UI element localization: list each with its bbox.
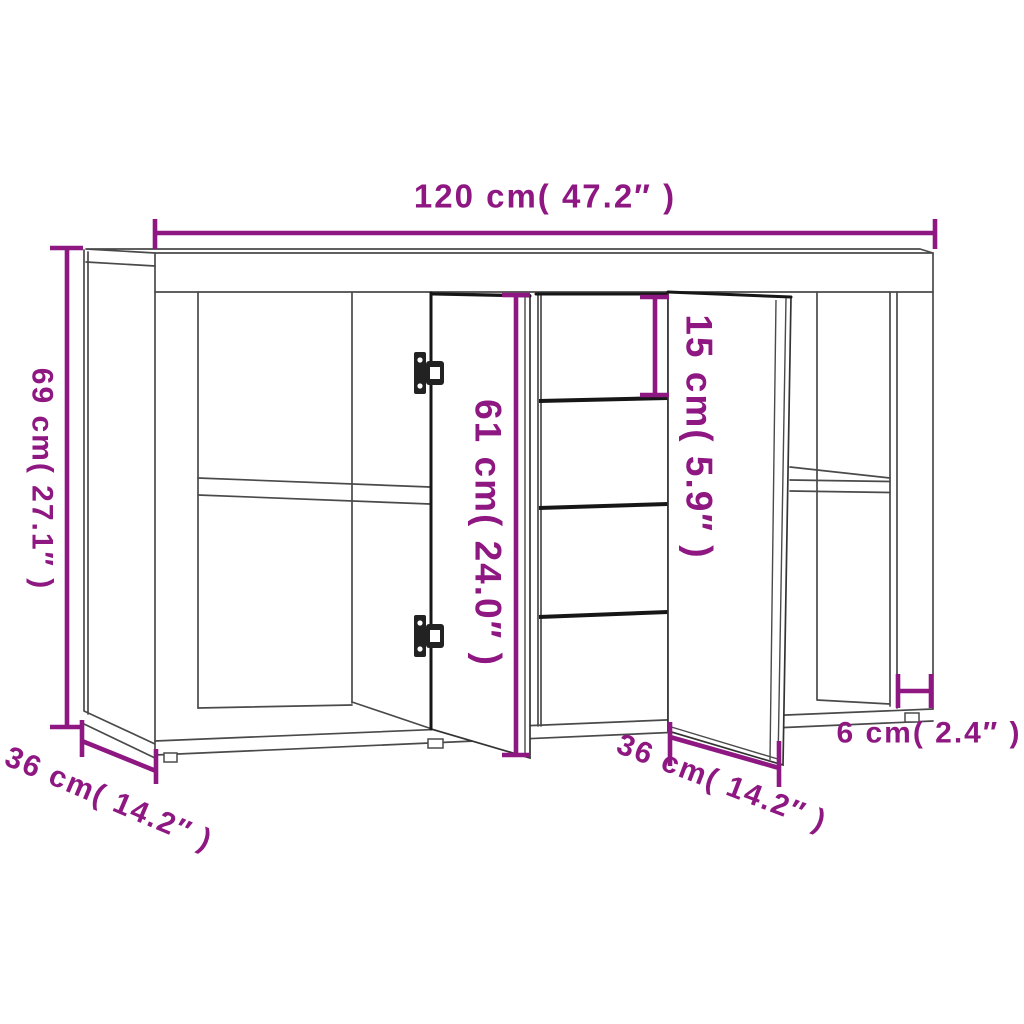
bottom-plinth <box>155 709 933 755</box>
dimension-label-right-side-depth: 6 cm( 2.4″ ) <box>836 717 1021 750</box>
left-shelf <box>198 478 430 504</box>
right-compartment <box>790 253 933 709</box>
dimension-label-top-drawer-height: 15 cm( 5.9″ ) <box>679 314 720 559</box>
drawer-dividers <box>539 398 668 617</box>
left-compartment <box>198 292 435 730</box>
width-dimension-line <box>155 219 935 249</box>
dimension-label-depth: 36 cm( 14.2″ ) <box>0 740 218 857</box>
dimension-diagram-page: 120 cm( 47.2″ ) 69 cm( 27.1″ ) 61 cm( 24… <box>0 0 1024 1024</box>
dimension-label-door-height: 61 cm( 24.0″ ) <box>468 399 509 667</box>
drawer-stack <box>536 292 668 731</box>
right-shelf <box>790 467 890 493</box>
left-side-panel <box>84 250 155 758</box>
side-depth-dimension-line <box>898 674 931 708</box>
dimension-label-overall-width: 120 cm( 47.2″ ) <box>414 178 676 215</box>
top-panel <box>86 249 933 292</box>
drawer-height-dimension-line <box>640 297 669 395</box>
sideboard-dimension-diagram: 120 cm( 47.2″ ) 69 cm( 27.1″ ) 61 cm( 24… <box>0 0 1024 1024</box>
dimension-label-overall-height: 69 cm( 27.1″ ) <box>26 368 59 590</box>
